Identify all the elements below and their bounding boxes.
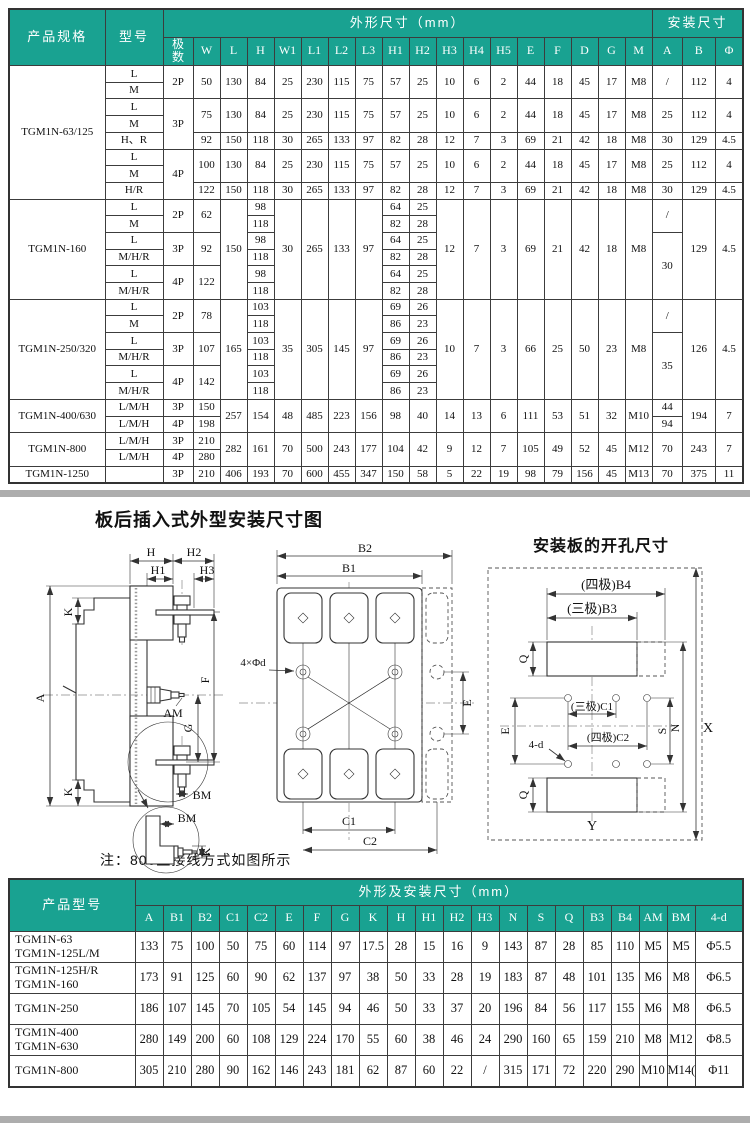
- dim-label: N: [668, 723, 682, 732]
- column-header: C1: [219, 905, 247, 931]
- table-cell: 28: [409, 216, 436, 233]
- column-header: 产品型号: [9, 879, 135, 931]
- column-header: Q: [555, 905, 583, 931]
- table-cell: 45: [571, 149, 598, 182]
- table-cell: M8: [625, 182, 652, 199]
- table-cell: 12: [463, 433, 490, 466]
- table-cell: 10: [436, 66, 463, 99]
- table-cell: 112: [682, 66, 715, 99]
- table-cell: 100: [191, 931, 219, 962]
- table-cell: 28: [555, 931, 583, 962]
- table-cell: 122: [193, 266, 220, 299]
- table-cell: 130: [220, 99, 247, 132]
- table-cell: 4.5: [715, 132, 743, 149]
- table-cell: 18: [598, 182, 625, 199]
- dim-label: K: [61, 607, 75, 616]
- mounting-plate-drawing: (四极)B4 (三极)B3 Q Q (三极)C1 (四极)C2 E 4-d S: [470, 556, 732, 856]
- table-cell: 5: [436, 466, 463, 483]
- table-cell: 57: [382, 149, 409, 182]
- table-cell: 70: [274, 433, 301, 466]
- table-cell: M5: [667, 931, 695, 962]
- table-cell: 87: [527, 962, 555, 993]
- table-cell: 210: [193, 433, 220, 450]
- table-cell: 82: [382, 283, 409, 300]
- table-cell: M8: [625, 299, 652, 399]
- table-cell: L: [105, 199, 163, 216]
- table-cell: 17: [598, 149, 625, 182]
- table-cell: 110: [611, 931, 639, 962]
- table-cell: 133: [328, 182, 355, 199]
- table-cell: 290: [611, 1055, 639, 1087]
- table-cell: M10: [639, 1055, 667, 1087]
- table-cell: 10: [436, 149, 463, 182]
- table-cell: 56: [555, 993, 583, 1024]
- table-cell: 315: [499, 1055, 527, 1087]
- table-cell: 64: [382, 199, 409, 216]
- column-header: W1: [274, 37, 301, 66]
- dim-label: C2: [363, 834, 377, 848]
- table-cell: 7: [463, 182, 490, 199]
- table-cell: TGM1N-160: [9, 199, 105, 299]
- dim-label: BM: [178, 811, 197, 825]
- mounting-plate-title: 安装板的开孔尺寸: [470, 532, 732, 556]
- table-cell: 210: [193, 466, 220, 483]
- table-cell: 145: [191, 993, 219, 1024]
- table-cell: M8: [667, 993, 695, 1024]
- table-cell: 86: [382, 349, 409, 366]
- table-cell: 118: [247, 283, 274, 300]
- table-cell: 194: [682, 399, 715, 432]
- table-cell: 165: [220, 299, 247, 399]
- table-cell: 25: [652, 99, 682, 132]
- table-cell: 133: [328, 132, 355, 149]
- table-cell: 28: [387, 931, 415, 962]
- table-cell: 98: [247, 232, 274, 249]
- table-cell: 305: [135, 1055, 163, 1087]
- table-cell: 6: [463, 149, 490, 182]
- table-cell: 17.5: [359, 931, 387, 962]
- table-cell: 44: [517, 149, 544, 182]
- table-cell: 115: [328, 66, 355, 99]
- table-cell: Φ6.5: [695, 962, 743, 993]
- section-title: 板后插入式外型安装尺寸图: [95, 506, 323, 532]
- table-cell: 52: [571, 433, 598, 466]
- table-cell: 280: [135, 1024, 163, 1055]
- column-header: 4-d: [695, 905, 743, 931]
- table-cell: 4P: [163, 266, 193, 299]
- table-cell: M8: [667, 962, 695, 993]
- column-header: B3: [583, 905, 611, 931]
- table-cell: 75: [355, 66, 382, 99]
- table-cell: 44: [517, 99, 544, 132]
- dim-label: (三极)B3: [567, 601, 617, 616]
- table-cell: 69: [517, 132, 544, 149]
- table-cell: 3: [490, 199, 517, 299]
- table-cell: 42: [409, 433, 436, 466]
- table-cell: 150: [220, 132, 247, 149]
- table-cell: 70: [219, 993, 247, 1024]
- dim-label: H: [147, 545, 156, 559]
- table-cell: 125: [191, 962, 219, 993]
- table-cell: 45: [571, 66, 598, 99]
- table-cell: Φ11: [695, 1055, 743, 1087]
- table-cell: 42: [571, 132, 598, 149]
- table-cell: 50: [219, 931, 247, 962]
- table-cell: M8: [625, 132, 652, 149]
- table-cell: 24: [471, 1024, 499, 1055]
- table-cell: L/M/H: [105, 399, 163, 416]
- table-cell: 183: [499, 962, 527, 993]
- table-cell: 97: [355, 199, 382, 299]
- table-cell: 150: [220, 199, 247, 299]
- table-cell: 118: [247, 132, 274, 149]
- table-cell: 23: [598, 299, 625, 399]
- table-cell: 75: [163, 931, 191, 962]
- dim-label: B2: [358, 541, 372, 555]
- column-header: BM: [667, 905, 695, 931]
- table-cell: 103: [247, 366, 274, 383]
- table-cell: 21: [544, 199, 571, 299]
- table-cell: TGM1N-400 TGM1N-630: [9, 1024, 135, 1055]
- table-cell: 129: [682, 132, 715, 149]
- outline-dimensions-table: 产品规格型号外形尺寸（mm）安装尺寸极 数WLHW1L1L2L3H1H2H3H4…: [8, 8, 744, 484]
- table-cell: 86: [382, 316, 409, 333]
- table-cell: 118: [247, 349, 274, 366]
- table-cell: 105: [247, 993, 275, 1024]
- table-cell: 305: [301, 299, 328, 399]
- table-cell: 160: [527, 1024, 555, 1055]
- table-cell: L/M/H: [105, 433, 163, 450]
- table-cell: 115: [328, 149, 355, 182]
- section-divider: [0, 490, 750, 497]
- table-cell: 70: [274, 466, 301, 483]
- table-cell: 25: [274, 66, 301, 99]
- dim-label: AM: [163, 706, 183, 720]
- column-header: 外形尺寸（mm）: [163, 9, 652, 37]
- table-cell: 485: [301, 399, 328, 432]
- column-header: E: [517, 37, 544, 66]
- table-cell: 150: [220, 182, 247, 199]
- dim-label: A: [33, 693, 47, 702]
- table-cell: M12: [625, 433, 652, 466]
- dim-label: Y: [587, 819, 597, 834]
- table-cell: 87: [387, 1055, 415, 1087]
- table-cell: TGM1N-1250: [9, 466, 105, 483]
- table-cell: 500: [301, 433, 328, 466]
- table-cell: M/H/R: [105, 283, 163, 300]
- table-cell: 38: [359, 962, 387, 993]
- table-cell: H/R: [105, 182, 163, 199]
- table-cell: 25: [652, 149, 682, 182]
- table-cell: 150: [193, 399, 220, 416]
- table-cell: 30: [652, 232, 682, 299]
- table-cell: 10: [436, 99, 463, 132]
- table-cell: 22: [443, 1055, 471, 1087]
- table-cell: 146: [275, 1055, 303, 1087]
- table-cell: 186: [135, 993, 163, 1024]
- column-header: D: [571, 37, 598, 66]
- table-cell: 155: [611, 993, 639, 1024]
- table-cell: 94: [331, 993, 359, 1024]
- table-cell: L: [105, 266, 163, 283]
- table-cell: 50: [571, 299, 598, 399]
- table-cell: Φ6.5: [695, 993, 743, 1024]
- table-cell: 145: [328, 299, 355, 399]
- column-header: M: [625, 37, 652, 66]
- table-cell: [105, 466, 163, 483]
- table-cell: 13: [463, 399, 490, 432]
- table-cell: L: [105, 99, 163, 116]
- table-cell: 118: [247, 249, 274, 266]
- table-cell: 90: [247, 962, 275, 993]
- table-cell: 224: [303, 1024, 331, 1055]
- table-cell: 162: [247, 1055, 275, 1087]
- table-cell: 129: [682, 199, 715, 299]
- column-header: H3: [436, 37, 463, 66]
- table-cell: 69: [382, 366, 409, 383]
- column-header: Φ: [715, 37, 743, 66]
- table-cell: 33: [415, 993, 443, 1024]
- column-header: N: [499, 905, 527, 931]
- dim-label: K: [61, 787, 75, 796]
- table-cell: /: [652, 66, 682, 99]
- table-cell: 118: [247, 383, 274, 400]
- column-header: H3: [471, 905, 499, 931]
- dim-label: K: [199, 847, 213, 856]
- table-cell: 69: [517, 182, 544, 199]
- table-cell: 98: [382, 399, 409, 432]
- table-cell: 133: [135, 931, 163, 962]
- table-cell: L: [105, 66, 163, 83]
- table-cell: 114: [303, 931, 331, 962]
- table-cell: 133: [328, 199, 355, 299]
- table-cell: M10: [625, 399, 652, 432]
- table-cell: TGM1N-800: [9, 1055, 135, 1087]
- table-cell: 455: [328, 466, 355, 483]
- table-cell: 4: [715, 99, 743, 132]
- column-header: B2: [191, 905, 219, 931]
- dim-label: BM: [193, 788, 212, 802]
- table-cell: 30: [652, 132, 682, 149]
- table-cell: 117: [583, 993, 611, 1024]
- table-cell: 20: [471, 993, 499, 1024]
- table-cell: 21: [544, 182, 571, 199]
- table-cell: 28: [443, 962, 471, 993]
- table-cell: 9: [436, 433, 463, 466]
- table-cell: 200: [191, 1024, 219, 1055]
- table-cell: 19: [490, 466, 517, 483]
- table-cell: 28: [409, 249, 436, 266]
- table-cell: 33: [415, 962, 443, 993]
- table-cell: 44: [652, 399, 682, 416]
- table-cell: 161: [247, 433, 274, 466]
- table-cell: 35: [652, 333, 682, 400]
- table-cell: 265: [301, 132, 328, 149]
- column-header: F: [303, 905, 331, 931]
- table-cell: 48: [555, 962, 583, 993]
- column-header: L2: [328, 37, 355, 66]
- table-cell: 62: [193, 199, 220, 232]
- table-cell: 25: [409, 99, 436, 132]
- table-cell: 7: [715, 399, 743, 432]
- table-cell: 154: [247, 399, 274, 432]
- side-view-drawing: H H2 H1 H3 A K K G F AM BM: [30, 540, 265, 875]
- table-cell: 66: [517, 299, 544, 399]
- table-cell: 92: [193, 132, 220, 149]
- dim-label: E: [498, 727, 512, 734]
- table-cell: 37: [443, 993, 471, 1024]
- table-cell: 25: [409, 232, 436, 249]
- table-cell: 280: [191, 1055, 219, 1087]
- table-cell: M8: [625, 99, 652, 132]
- table-cell: 181: [331, 1055, 359, 1087]
- table-cell: 28: [409, 132, 436, 149]
- table-cell: 64: [382, 266, 409, 283]
- table-cell: 55: [359, 1024, 387, 1055]
- table-cell: 98: [517, 466, 544, 483]
- table-cell: 48: [274, 399, 301, 432]
- table-cell: 3P: [163, 232, 193, 265]
- table-cell: 60: [275, 931, 303, 962]
- table-cell: 82: [382, 249, 409, 266]
- table-cell: 18: [544, 66, 571, 99]
- table-cell: 118: [247, 182, 274, 199]
- table-cell: 94: [652, 416, 682, 433]
- table-cell: 90: [219, 1055, 247, 1087]
- table-cell: 6: [463, 99, 490, 132]
- table-cell: 26: [409, 299, 436, 316]
- table-cell: L: [105, 232, 163, 249]
- table-cell: 60: [415, 1055, 443, 1087]
- table-cell: 50: [387, 962, 415, 993]
- table-cell: 193: [247, 466, 274, 483]
- table-cell: /: [652, 299, 682, 332]
- table-cell: 87: [527, 931, 555, 962]
- column-header: AM: [639, 905, 667, 931]
- table-cell: 46: [443, 1024, 471, 1055]
- table-cell: M/H/R: [105, 349, 163, 366]
- dim-label: B1: [342, 561, 356, 575]
- table-cell: 108: [247, 1024, 275, 1055]
- table-cell: 220: [583, 1055, 611, 1087]
- table-cell: 50: [387, 993, 415, 1024]
- table-cell: TGM1N-400/630: [9, 399, 105, 432]
- table-cell: 156: [355, 399, 382, 432]
- table-cell: 25: [274, 149, 301, 182]
- table-cell: 45: [598, 433, 625, 466]
- table-cell: 38: [415, 1024, 443, 1055]
- column-header: H1: [415, 905, 443, 931]
- table-cell: M: [105, 82, 163, 99]
- table-cell: M13: [625, 466, 652, 483]
- table-cell: 7: [715, 433, 743, 466]
- column-header: 安装尺寸: [652, 9, 743, 37]
- table-cell: L: [105, 333, 163, 350]
- table-cell: 230: [301, 149, 328, 182]
- table-cell: 60: [387, 1024, 415, 1055]
- table-cell: TGM1N-63 TGM1N-125L/M: [9, 931, 135, 962]
- table-cell: 2: [490, 149, 517, 182]
- table-cell: 84: [247, 66, 274, 99]
- table-cell: L/M/H: [105, 449, 163, 466]
- column-header: A: [135, 905, 163, 931]
- table-cell: 42: [571, 182, 598, 199]
- table-cell: 35: [274, 299, 301, 399]
- table-cell: 4P: [163, 149, 193, 199]
- column-header: F: [544, 37, 571, 66]
- table-cell: 18: [598, 132, 625, 149]
- table-cell: 42: [571, 199, 598, 299]
- dim-label: F: [198, 676, 212, 683]
- table-cell: 11: [715, 466, 743, 483]
- table-cell: Φ8.5: [695, 1024, 743, 1055]
- table-cell: 265: [301, 182, 328, 199]
- table-cell: M: [105, 316, 163, 333]
- column-header: B1: [163, 905, 191, 931]
- table-cell: 4P: [163, 449, 193, 466]
- table-cell: 40: [409, 399, 436, 432]
- table-cell: 57: [382, 99, 409, 132]
- column-header: H5: [490, 37, 517, 66]
- column-header: H4: [463, 37, 490, 66]
- table-cell: TGM1N-63/125: [9, 66, 105, 200]
- table-cell: 230: [301, 99, 328, 132]
- table-cell: 91: [163, 962, 191, 993]
- front-view-drawing: B2 B1 4×Φd E C1 C2: [232, 540, 477, 870]
- table-cell: 45: [571, 99, 598, 132]
- dim-label: (三极)C1: [571, 699, 613, 713]
- table-cell: 82: [382, 216, 409, 233]
- table-cell: 4: [715, 149, 743, 182]
- table-cell: 112: [682, 99, 715, 132]
- table-cell: 18: [544, 149, 571, 182]
- table-cell: 70: [652, 433, 682, 466]
- table-cell: 25: [409, 199, 436, 216]
- table-cell: 118: [247, 216, 274, 233]
- table-cell: H、R: [105, 132, 163, 149]
- table-cell: /: [652, 199, 682, 232]
- table-cell: 30: [652, 182, 682, 199]
- table-cell: 84: [247, 149, 274, 182]
- dim-label: X: [703, 721, 713, 736]
- table-cell: 23: [409, 316, 436, 333]
- table-cell: 69: [517, 199, 544, 299]
- table-cell: 3P: [163, 433, 193, 450]
- table-cell: M14(T): [667, 1055, 695, 1087]
- table-cell: 23: [409, 383, 436, 400]
- table-cell: 17: [598, 66, 625, 99]
- table-cell: M8: [639, 1024, 667, 1055]
- dim-label: S: [655, 728, 669, 735]
- table-cell: 135: [611, 962, 639, 993]
- dim-label: Q: [516, 654, 530, 663]
- table-cell: 159: [583, 1024, 611, 1055]
- table-cell: 290: [499, 1024, 527, 1055]
- table-cell: 129: [275, 1024, 303, 1055]
- table-cell: 18: [598, 199, 625, 299]
- table-cell: 62: [275, 962, 303, 993]
- spec-sheet-page: 产品规格型号外形尺寸（mm）安装尺寸极 数WLHW1L1L2L3H1H2H3H4…: [0, 0, 750, 1123]
- table-cell: 85: [583, 931, 611, 962]
- table-cell: 3P: [163, 399, 193, 416]
- table-cell: 15: [415, 931, 443, 962]
- table-cell: 143: [499, 931, 527, 962]
- table-cell: 22: [463, 466, 490, 483]
- table-cell: 92: [193, 232, 220, 265]
- column-header: S: [527, 905, 555, 931]
- column-header: 极 数: [163, 37, 193, 66]
- column-header: 产品规格: [9, 9, 105, 66]
